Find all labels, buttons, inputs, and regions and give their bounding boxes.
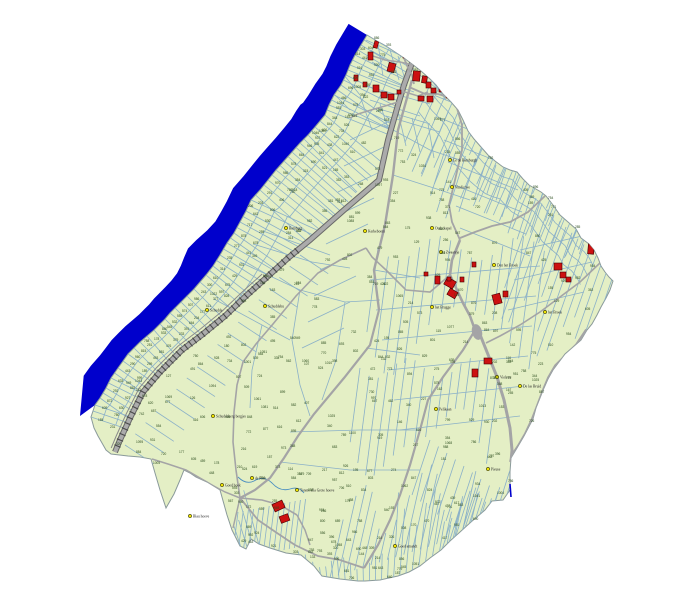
svg-text:Blau hoeve: Blau hoeve bbox=[193, 515, 210, 519]
svg-text:133: 133 bbox=[310, 555, 316, 559]
svg-text:429: 429 bbox=[380, 282, 386, 286]
svg-text:391: 391 bbox=[184, 327, 190, 331]
svg-text:178: 178 bbox=[154, 337, 160, 341]
svg-text:469: 469 bbox=[529, 195, 535, 199]
svg-text:235: 235 bbox=[227, 256, 233, 260]
svg-text:het Brugge: het Brugge bbox=[435, 306, 451, 310]
svg-text:771: 771 bbox=[551, 205, 557, 209]
svg-text:689: 689 bbox=[335, 519, 341, 523]
svg-text:1081: 1081 bbox=[261, 405, 268, 409]
svg-text:235: 235 bbox=[445, 150, 451, 154]
svg-text:856: 856 bbox=[455, 137, 461, 141]
svg-text:284: 284 bbox=[286, 231, 292, 235]
svg-text:Gr de Bamburgh: Gr de Bamburgh bbox=[453, 159, 477, 163]
svg-text:216: 216 bbox=[241, 447, 247, 451]
svg-text:439: 439 bbox=[450, 496, 456, 500]
svg-text:573: 573 bbox=[417, 311, 423, 315]
svg-text:726: 726 bbox=[529, 419, 535, 423]
svg-text:300: 300 bbox=[207, 283, 213, 287]
svg-text:717: 717 bbox=[247, 223, 253, 227]
svg-text:642: 642 bbox=[253, 212, 259, 216]
svg-text:905: 905 bbox=[314, 142, 320, 146]
svg-text:521: 521 bbox=[322, 166, 328, 170]
svg-text:894: 894 bbox=[407, 372, 413, 376]
svg-text:261: 261 bbox=[294, 282, 300, 286]
svg-text:181: 181 bbox=[441, 457, 447, 461]
svg-text:938: 938 bbox=[426, 216, 432, 220]
svg-text:742: 742 bbox=[139, 412, 145, 416]
svg-text:999: 999 bbox=[137, 376, 143, 380]
svg-text:479: 479 bbox=[377, 246, 383, 250]
svg-text:303: 303 bbox=[293, 550, 299, 554]
svg-text:706: 706 bbox=[339, 486, 345, 490]
svg-text:231: 231 bbox=[110, 425, 116, 429]
svg-text:559: 559 bbox=[259, 507, 265, 511]
svg-text:441: 441 bbox=[362, 56, 368, 60]
svg-text:393: 393 bbox=[386, 43, 392, 47]
svg-text:612: 612 bbox=[296, 419, 302, 423]
svg-text:643: 643 bbox=[378, 566, 384, 570]
svg-text:675: 675 bbox=[225, 283, 231, 287]
svg-text:Pieuse: Pieuse bbox=[491, 468, 501, 472]
svg-text:214: 214 bbox=[463, 340, 469, 344]
svg-text:949: 949 bbox=[295, 336, 301, 340]
svg-text:574: 574 bbox=[182, 309, 188, 313]
svg-text:858: 858 bbox=[308, 488, 314, 492]
svg-text:915: 915 bbox=[319, 508, 325, 512]
svg-text:622: 622 bbox=[334, 135, 340, 139]
svg-text:393: 393 bbox=[327, 552, 333, 556]
svg-text:730: 730 bbox=[369, 390, 375, 394]
svg-text:340: 340 bbox=[327, 424, 333, 428]
svg-text:Schuddebu: Schuddebu bbox=[268, 305, 284, 309]
svg-text:880: 880 bbox=[535, 234, 541, 238]
svg-text:299: 299 bbox=[147, 362, 153, 366]
svg-text:243: 243 bbox=[201, 290, 207, 294]
svg-text:381: 381 bbox=[368, 377, 374, 381]
svg-text:709: 709 bbox=[306, 472, 312, 476]
svg-text:758: 758 bbox=[357, 519, 363, 523]
svg-text:177: 177 bbox=[179, 450, 185, 454]
svg-text:153: 153 bbox=[499, 405, 505, 409]
svg-text:750: 750 bbox=[193, 354, 199, 358]
svg-text:693: 693 bbox=[339, 342, 345, 346]
svg-text:326: 326 bbox=[389, 535, 395, 539]
svg-text:437: 437 bbox=[445, 504, 451, 508]
svg-text:De las Bruid: De las Bruid bbox=[523, 385, 541, 389]
svg-text:773: 773 bbox=[387, 367, 393, 371]
svg-text:779: 779 bbox=[439, 188, 445, 192]
svg-text:458: 458 bbox=[348, 498, 354, 502]
svg-text:429: 429 bbox=[232, 274, 238, 278]
svg-text:719: 719 bbox=[373, 282, 379, 286]
svg-text:383: 383 bbox=[506, 360, 512, 364]
svg-text:377: 377 bbox=[213, 297, 219, 301]
svg-text:274: 274 bbox=[391, 468, 397, 472]
svg-text:616: 616 bbox=[277, 425, 283, 429]
svg-text:619: 619 bbox=[252, 465, 258, 469]
svg-text:163: 163 bbox=[270, 288, 276, 292]
svg-text:927: 927 bbox=[125, 396, 131, 400]
svg-text:416: 416 bbox=[471, 197, 477, 201]
svg-text:595: 595 bbox=[516, 328, 522, 332]
svg-text:885: 885 bbox=[321, 341, 327, 345]
svg-text:919: 919 bbox=[377, 436, 383, 440]
svg-text:381: 381 bbox=[413, 68, 419, 72]
svg-text:982: 982 bbox=[575, 276, 581, 280]
svg-text:954: 954 bbox=[566, 332, 572, 336]
svg-text:812: 812 bbox=[339, 471, 345, 475]
svg-text:251: 251 bbox=[548, 213, 554, 217]
svg-text:315: 315 bbox=[303, 169, 309, 173]
svg-text:789: 789 bbox=[341, 433, 347, 437]
svg-text:582: 582 bbox=[291, 403, 297, 407]
svg-text:887: 887 bbox=[539, 390, 545, 394]
svg-text:1060: 1060 bbox=[302, 359, 309, 363]
svg-text:255: 255 bbox=[259, 230, 265, 234]
svg-text:886: 886 bbox=[374, 36, 380, 40]
svg-text:398: 398 bbox=[332, 359, 338, 363]
svg-text:126: 126 bbox=[190, 396, 196, 400]
svg-text:385: 385 bbox=[440, 251, 446, 255]
svg-text:793: 793 bbox=[317, 549, 323, 553]
svg-text:1001: 1001 bbox=[244, 360, 251, 364]
svg-text:167: 167 bbox=[506, 388, 512, 392]
svg-text:402: 402 bbox=[296, 229, 302, 233]
svg-text:863: 863 bbox=[482, 321, 488, 325]
svg-text:112: 112 bbox=[136, 388, 141, 392]
svg-text:986: 986 bbox=[283, 171, 289, 175]
svg-text:356: 356 bbox=[322, 209, 328, 213]
svg-text:498: 498 bbox=[241, 299, 247, 303]
svg-text:1041: 1041 bbox=[473, 494, 480, 498]
svg-text:510: 510 bbox=[350, 150, 356, 154]
svg-text:1034: 1034 bbox=[419, 164, 426, 168]
svg-text:144: 144 bbox=[359, 552, 365, 556]
svg-text:162: 162 bbox=[437, 387, 443, 391]
svg-text:208: 208 bbox=[492, 311, 498, 315]
svg-text:324: 324 bbox=[411, 153, 417, 157]
svg-text:779: 779 bbox=[397, 567, 403, 571]
svg-text:580: 580 bbox=[263, 274, 269, 278]
svg-text:1025: 1025 bbox=[328, 414, 335, 418]
svg-text:541: 541 bbox=[319, 151, 325, 155]
svg-text:116: 116 bbox=[506, 356, 511, 360]
svg-text:Pelikaan: Pelikaan bbox=[439, 408, 452, 412]
svg-text:719: 719 bbox=[394, 136, 400, 140]
svg-text:368: 368 bbox=[497, 382, 503, 386]
svg-text:530: 530 bbox=[265, 219, 271, 223]
svg-text:934: 934 bbox=[475, 482, 481, 486]
svg-text:447: 447 bbox=[333, 158, 339, 162]
svg-text:Goed amandt: Goed amandt bbox=[398, 545, 417, 549]
svg-text:368: 368 bbox=[290, 444, 296, 448]
svg-text:256: 256 bbox=[443, 238, 449, 242]
svg-text:609: 609 bbox=[102, 406, 108, 410]
svg-text:640: 640 bbox=[387, 575, 393, 579]
svg-text:670: 670 bbox=[458, 288, 464, 292]
svg-text:677: 677 bbox=[165, 400, 171, 404]
svg-text:583: 583 bbox=[314, 297, 320, 301]
svg-text:170: 170 bbox=[411, 523, 417, 527]
svg-text:802: 802 bbox=[353, 349, 359, 353]
svg-text:429: 429 bbox=[241, 539, 247, 543]
svg-text:758: 758 bbox=[521, 369, 527, 373]
svg-text:482: 482 bbox=[361, 141, 367, 145]
svg-text:720: 720 bbox=[475, 205, 481, 209]
svg-text:512: 512 bbox=[341, 199, 347, 203]
svg-text:878: 878 bbox=[241, 234, 247, 238]
svg-text:678: 678 bbox=[331, 540, 337, 544]
svg-text:606: 606 bbox=[200, 415, 206, 419]
svg-text:223: 223 bbox=[538, 362, 544, 366]
svg-text:275: 275 bbox=[434, 367, 440, 371]
svg-text:803: 803 bbox=[368, 476, 374, 480]
svg-text:802: 802 bbox=[347, 253, 353, 257]
svg-text:862: 862 bbox=[130, 386, 136, 390]
svg-text:562: 562 bbox=[286, 359, 292, 363]
svg-text:630: 630 bbox=[119, 406, 125, 410]
svg-text:340: 340 bbox=[406, 403, 412, 407]
svg-text:158: 158 bbox=[260, 281, 266, 285]
svg-text:865: 865 bbox=[398, 330, 404, 334]
svg-text:520: 520 bbox=[439, 227, 445, 231]
svg-text:1010: 1010 bbox=[325, 361, 332, 365]
svg-text:514: 514 bbox=[273, 406, 279, 410]
svg-text:930: 930 bbox=[484, 420, 490, 424]
svg-text:753: 753 bbox=[400, 160, 406, 164]
svg-text:172: 172 bbox=[246, 505, 252, 509]
svg-text:604: 604 bbox=[368, 46, 374, 50]
svg-text:314: 314 bbox=[288, 236, 294, 240]
svg-text:251: 251 bbox=[147, 343, 153, 347]
svg-text:601: 601 bbox=[322, 128, 328, 132]
svg-text:949: 949 bbox=[274, 506, 280, 510]
svg-text:802: 802 bbox=[241, 343, 247, 347]
svg-text:616: 616 bbox=[416, 428, 422, 432]
svg-text:578: 578 bbox=[291, 162, 297, 166]
svg-text:884: 884 bbox=[136, 450, 142, 454]
svg-text:629: 629 bbox=[435, 273, 441, 277]
svg-text:800: 800 bbox=[320, 519, 326, 523]
svg-text:920: 920 bbox=[374, 63, 380, 67]
svg-text:786: 786 bbox=[471, 440, 477, 444]
svg-text:177: 177 bbox=[200, 310, 206, 314]
svg-text:1065: 1065 bbox=[396, 294, 403, 298]
svg-text:952: 952 bbox=[369, 73, 375, 77]
svg-text:883: 883 bbox=[458, 503, 464, 507]
svg-text:620: 620 bbox=[148, 401, 154, 405]
svg-text:508: 508 bbox=[401, 526, 407, 530]
svg-text:195: 195 bbox=[353, 468, 359, 472]
svg-text:417: 417 bbox=[442, 536, 448, 540]
svg-text:459: 459 bbox=[200, 459, 206, 463]
svg-text:950: 950 bbox=[238, 500, 244, 504]
svg-text:514: 514 bbox=[430, 191, 436, 195]
svg-text:993: 993 bbox=[383, 178, 389, 182]
svg-text:406: 406 bbox=[279, 198, 285, 202]
svg-text:614: 614 bbox=[355, 52, 361, 56]
svg-text:443: 443 bbox=[125, 369, 131, 373]
svg-text:195: 195 bbox=[384, 336, 390, 340]
svg-text:526: 526 bbox=[344, 123, 350, 127]
svg-text:982: 982 bbox=[307, 219, 313, 223]
svg-text:394: 394 bbox=[360, 93, 366, 97]
svg-text:472: 472 bbox=[370, 367, 376, 371]
svg-text:897: 897 bbox=[493, 329, 499, 333]
svg-text:780: 780 bbox=[114, 413, 120, 417]
svg-text:872: 872 bbox=[107, 399, 113, 403]
svg-text:981: 981 bbox=[372, 566, 378, 570]
svg-text:227: 227 bbox=[421, 397, 427, 401]
svg-text:165: 165 bbox=[333, 168, 339, 172]
svg-text:937: 937 bbox=[315, 136, 321, 140]
svg-text:545: 545 bbox=[167, 325, 173, 329]
svg-text:379: 379 bbox=[173, 338, 179, 342]
svg-text:986: 986 bbox=[194, 297, 200, 301]
svg-text:1008: 1008 bbox=[354, 85, 361, 89]
svg-text:792: 792 bbox=[325, 258, 331, 262]
svg-text:664: 664 bbox=[299, 153, 305, 157]
svg-text:510: 510 bbox=[346, 484, 352, 488]
svg-text:1013: 1013 bbox=[479, 404, 486, 408]
svg-text:250: 250 bbox=[260, 476, 266, 480]
svg-text:848: 848 bbox=[247, 415, 253, 419]
svg-text:681: 681 bbox=[344, 569, 350, 573]
svg-text:677: 677 bbox=[367, 469, 373, 473]
svg-text:1095: 1095 bbox=[136, 440, 143, 444]
svg-text:396: 396 bbox=[495, 452, 501, 456]
svg-text:507: 507 bbox=[188, 303, 194, 307]
svg-text:992: 992 bbox=[248, 533, 254, 537]
svg-text:801: 801 bbox=[430, 338, 436, 342]
svg-text:354: 354 bbox=[297, 472, 303, 476]
svg-text:114: 114 bbox=[288, 467, 293, 471]
svg-text:657: 657 bbox=[151, 409, 157, 413]
svg-text:988: 988 bbox=[443, 445, 449, 449]
svg-text:597: 597 bbox=[219, 290, 225, 294]
svg-text:630: 630 bbox=[348, 113, 354, 117]
svg-text:584: 584 bbox=[258, 352, 264, 356]
svg-text:554: 554 bbox=[156, 424, 162, 428]
svg-text:921: 921 bbox=[271, 544, 277, 548]
svg-text:206: 206 bbox=[248, 204, 254, 208]
svg-text:1077: 1077 bbox=[447, 325, 454, 329]
svg-text:828: 828 bbox=[224, 294, 230, 298]
svg-text:Vindictive: Vindictive bbox=[455, 186, 470, 190]
svg-text:928: 928 bbox=[214, 356, 220, 360]
svg-text:309: 309 bbox=[369, 546, 375, 550]
svg-text:1005: 1005 bbox=[153, 461, 160, 465]
svg-text:610: 610 bbox=[213, 276, 219, 280]
svg-text:428: 428 bbox=[342, 257, 348, 261]
svg-text:932: 932 bbox=[385, 355, 391, 359]
svg-text:Kerkeboom: Kerkeboom bbox=[368, 230, 385, 234]
svg-text:518: 518 bbox=[292, 188, 298, 192]
svg-text:732: 732 bbox=[351, 330, 357, 334]
svg-text:509: 509 bbox=[244, 385, 250, 389]
svg-text:1051: 1051 bbox=[412, 562, 419, 566]
svg-text:214: 214 bbox=[377, 536, 383, 540]
svg-text:524: 524 bbox=[242, 467, 248, 471]
svg-text:951: 951 bbox=[513, 372, 519, 376]
svg-text:878: 878 bbox=[490, 376, 496, 380]
svg-text:664: 664 bbox=[189, 321, 195, 325]
svg-text:354: 354 bbox=[295, 178, 301, 182]
svg-text:799: 799 bbox=[445, 418, 451, 422]
svg-text:899: 899 bbox=[280, 390, 286, 394]
svg-text:405: 405 bbox=[523, 188, 529, 192]
svg-text:775: 775 bbox=[380, 53, 386, 57]
svg-text:336: 336 bbox=[378, 108, 384, 112]
svg-text:1094: 1094 bbox=[209, 384, 216, 388]
svg-text:416: 416 bbox=[193, 418, 199, 422]
svg-text:493: 493 bbox=[153, 356, 159, 360]
svg-text:524: 524 bbox=[318, 366, 324, 370]
svg-text:189: 189 bbox=[142, 369, 148, 373]
svg-text:127: 127 bbox=[166, 374, 172, 378]
svg-text:291: 291 bbox=[267, 191, 273, 195]
svg-text:157: 157 bbox=[267, 455, 273, 459]
svg-text:1100: 1100 bbox=[349, 431, 356, 435]
svg-text:931: 931 bbox=[150, 438, 156, 442]
svg-text:844: 844 bbox=[327, 122, 333, 126]
svg-text:555: 555 bbox=[455, 151, 461, 155]
svg-text:575: 575 bbox=[434, 381, 440, 385]
svg-text:396: 396 bbox=[329, 535, 335, 539]
svg-text:856: 856 bbox=[399, 557, 405, 561]
svg-text:957: 957 bbox=[332, 478, 338, 482]
svg-text:379: 379 bbox=[469, 312, 475, 316]
svg-text:518: 518 bbox=[384, 118, 390, 122]
svg-text:314: 314 bbox=[220, 267, 226, 271]
svg-text:847: 847 bbox=[411, 476, 417, 480]
svg-text:1022: 1022 bbox=[210, 292, 217, 296]
svg-text:555: 555 bbox=[177, 314, 183, 318]
svg-text:479: 479 bbox=[279, 268, 285, 272]
svg-text:1040: 1040 bbox=[342, 142, 349, 146]
svg-text:141: 141 bbox=[446, 180, 452, 184]
svg-text:129: 129 bbox=[554, 299, 560, 303]
svg-text:175: 175 bbox=[405, 226, 411, 230]
svg-text:573: 573 bbox=[375, 167, 381, 171]
svg-text:683: 683 bbox=[332, 445, 338, 449]
svg-text:539: 539 bbox=[253, 356, 259, 360]
svg-text:352: 352 bbox=[336, 178, 342, 182]
svg-text:t Zwaantje: t Zwaantje bbox=[444, 251, 460, 255]
svg-text:Schudde: Schudde bbox=[210, 309, 223, 313]
svg-text:973: 973 bbox=[281, 446, 287, 450]
svg-text:916: 916 bbox=[357, 66, 363, 70]
svg-text:754: 754 bbox=[278, 355, 284, 359]
svg-text:775: 775 bbox=[531, 351, 537, 355]
svg-text:408: 408 bbox=[225, 415, 231, 419]
svg-text:864: 864 bbox=[198, 362, 204, 366]
svg-text:463: 463 bbox=[248, 540, 254, 544]
svg-text:290: 290 bbox=[130, 362, 136, 366]
svg-text:202: 202 bbox=[492, 360, 498, 364]
svg-text:792: 792 bbox=[488, 156, 494, 160]
svg-text:769: 769 bbox=[287, 188, 293, 192]
svg-text:268: 268 bbox=[358, 182, 364, 186]
svg-text:371: 371 bbox=[445, 205, 451, 209]
svg-text:385: 385 bbox=[270, 315, 276, 319]
svg-text:373: 373 bbox=[275, 465, 281, 469]
svg-text:Den het Broek: Den het Broek bbox=[497, 264, 518, 268]
svg-text:115: 115 bbox=[436, 329, 441, 333]
svg-text:690: 690 bbox=[356, 547, 362, 551]
svg-text:155: 155 bbox=[548, 286, 554, 290]
